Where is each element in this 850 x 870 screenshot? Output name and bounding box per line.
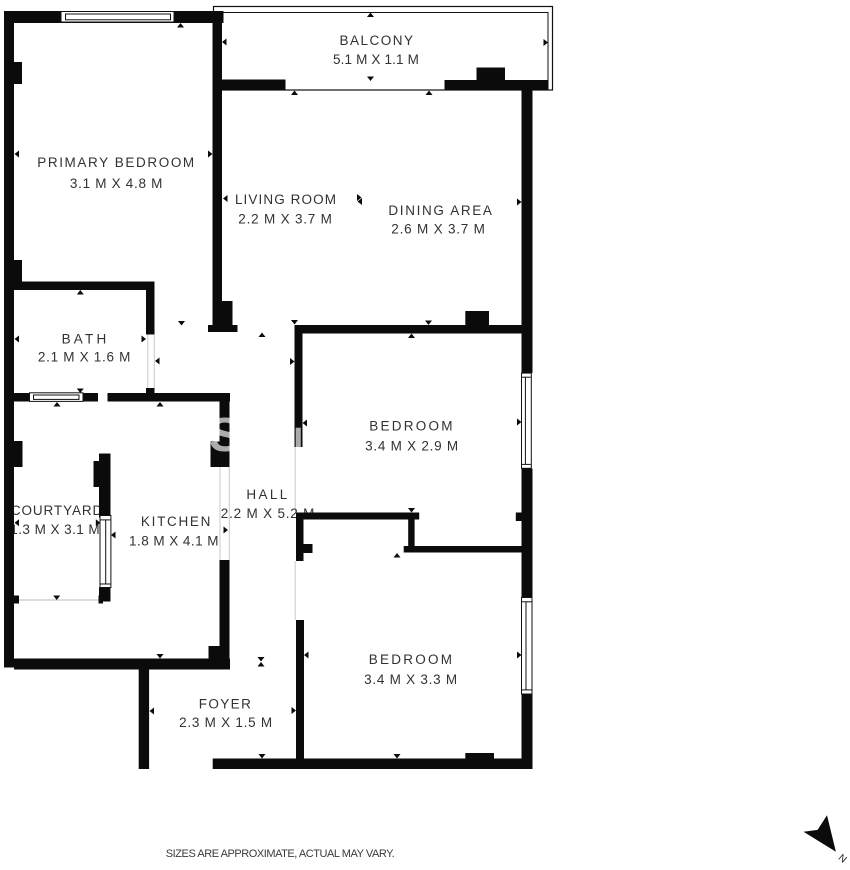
svg-text:3.4 M X 2.9 M: 3.4 M X 2.9 M <box>365 438 459 453</box>
svg-text:BEDROOM: BEDROOM <box>369 652 455 667</box>
svg-text:1.3 M X 3.1 M: 1.3 M X 3.1 M <box>10 522 100 537</box>
svg-text:FOYER: FOYER <box>199 696 253 711</box>
svg-text:N: N <box>836 853 849 866</box>
svg-text:BATH: BATH <box>62 331 110 346</box>
svg-text:BEDROOM: BEDROOM <box>369 418 455 433</box>
svg-text:5.1 M X 1.1 M: 5.1 M X 1.1 M <box>333 52 419 67</box>
svg-text:3.1 M X 4.8 M: 3.1 M X 4.8 M <box>70 176 163 191</box>
svg-text:SIZES ARE APPROXIMATE, ACTUAL: SIZES ARE APPROXIMATE, ACTUAL MAY VARY. <box>166 848 395 860</box>
svg-text:HALL: HALL <box>246 487 289 502</box>
svg-text:3.4 M X 3.3 M: 3.4 M X 3.3 M <box>364 672 458 687</box>
svg-text:BALCONY: BALCONY <box>339 33 414 48</box>
svg-text:2.2 M X 3.7 M: 2.2 M X 3.7 M <box>238 211 332 226</box>
svg-text:2.6 M X 3.7 M: 2.6 M X 3.7 M <box>391 221 485 236</box>
svg-text:COURTYARD: COURTYARD <box>11 503 103 518</box>
svg-text:2.1 M X 1.6 M: 2.1 M X 1.6 M <box>38 350 131 365</box>
svg-text:S: S <box>209 409 241 462</box>
svg-text:KITCHEN: KITCHEN <box>141 514 212 529</box>
svg-text:2.3 M X 1.5 M: 2.3 M X 1.5 M <box>179 715 273 730</box>
svg-text:LIVING ROOM: LIVING ROOM <box>235 192 337 207</box>
svg-text:DINING AREA: DINING AREA <box>388 203 493 218</box>
svg-text:PRIMARY BEDROOM: PRIMARY BEDROOM <box>37 155 196 170</box>
svg-text:1.8 M X 4.1 M: 1.8 M X 4.1 M <box>129 534 219 549</box>
